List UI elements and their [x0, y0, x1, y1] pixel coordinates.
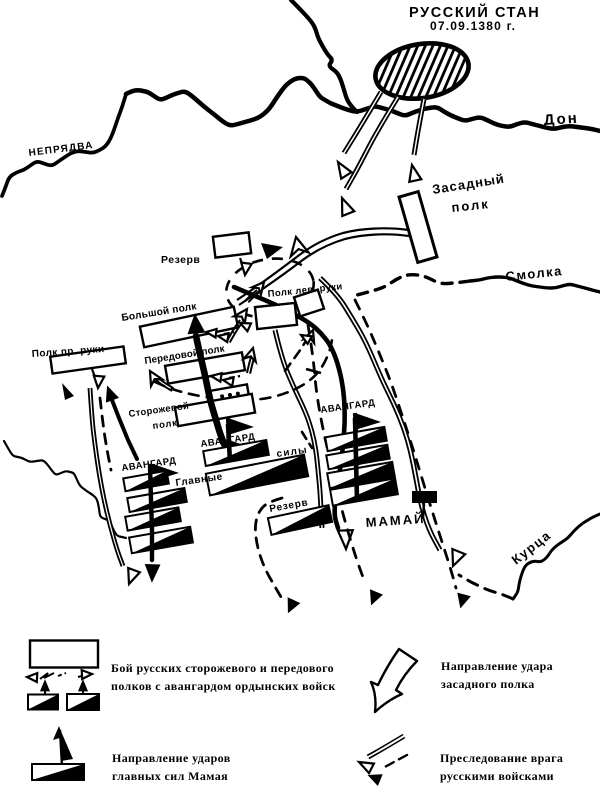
svg-text:русскими войсками: русскими войсками: [440, 769, 554, 783]
svg-text:Резерв: Резерв: [161, 254, 200, 266]
svg-text:главных сил Мамая: главных сил Мамая: [112, 769, 228, 783]
svg-text:07.09.1380 г.: 07.09.1380 г.: [430, 19, 516, 33]
svg-text:Бой русских сторожевого и пере: Бой русских сторожевого и передового: [111, 661, 334, 675]
svg-text:Дон: Дон: [543, 110, 579, 129]
svg-text:Преследование врага: Преследование врага: [440, 751, 563, 765]
svg-text:засадного полка: засадного полка: [441, 677, 535, 691]
svg-text:полков с авангардом ордынских: полков с авангардом ордынских войск: [111, 679, 336, 693]
svg-text:Направление ударов: Направление ударов: [112, 751, 231, 765]
svg-text:Направление удара: Направление удара: [441, 659, 553, 673]
